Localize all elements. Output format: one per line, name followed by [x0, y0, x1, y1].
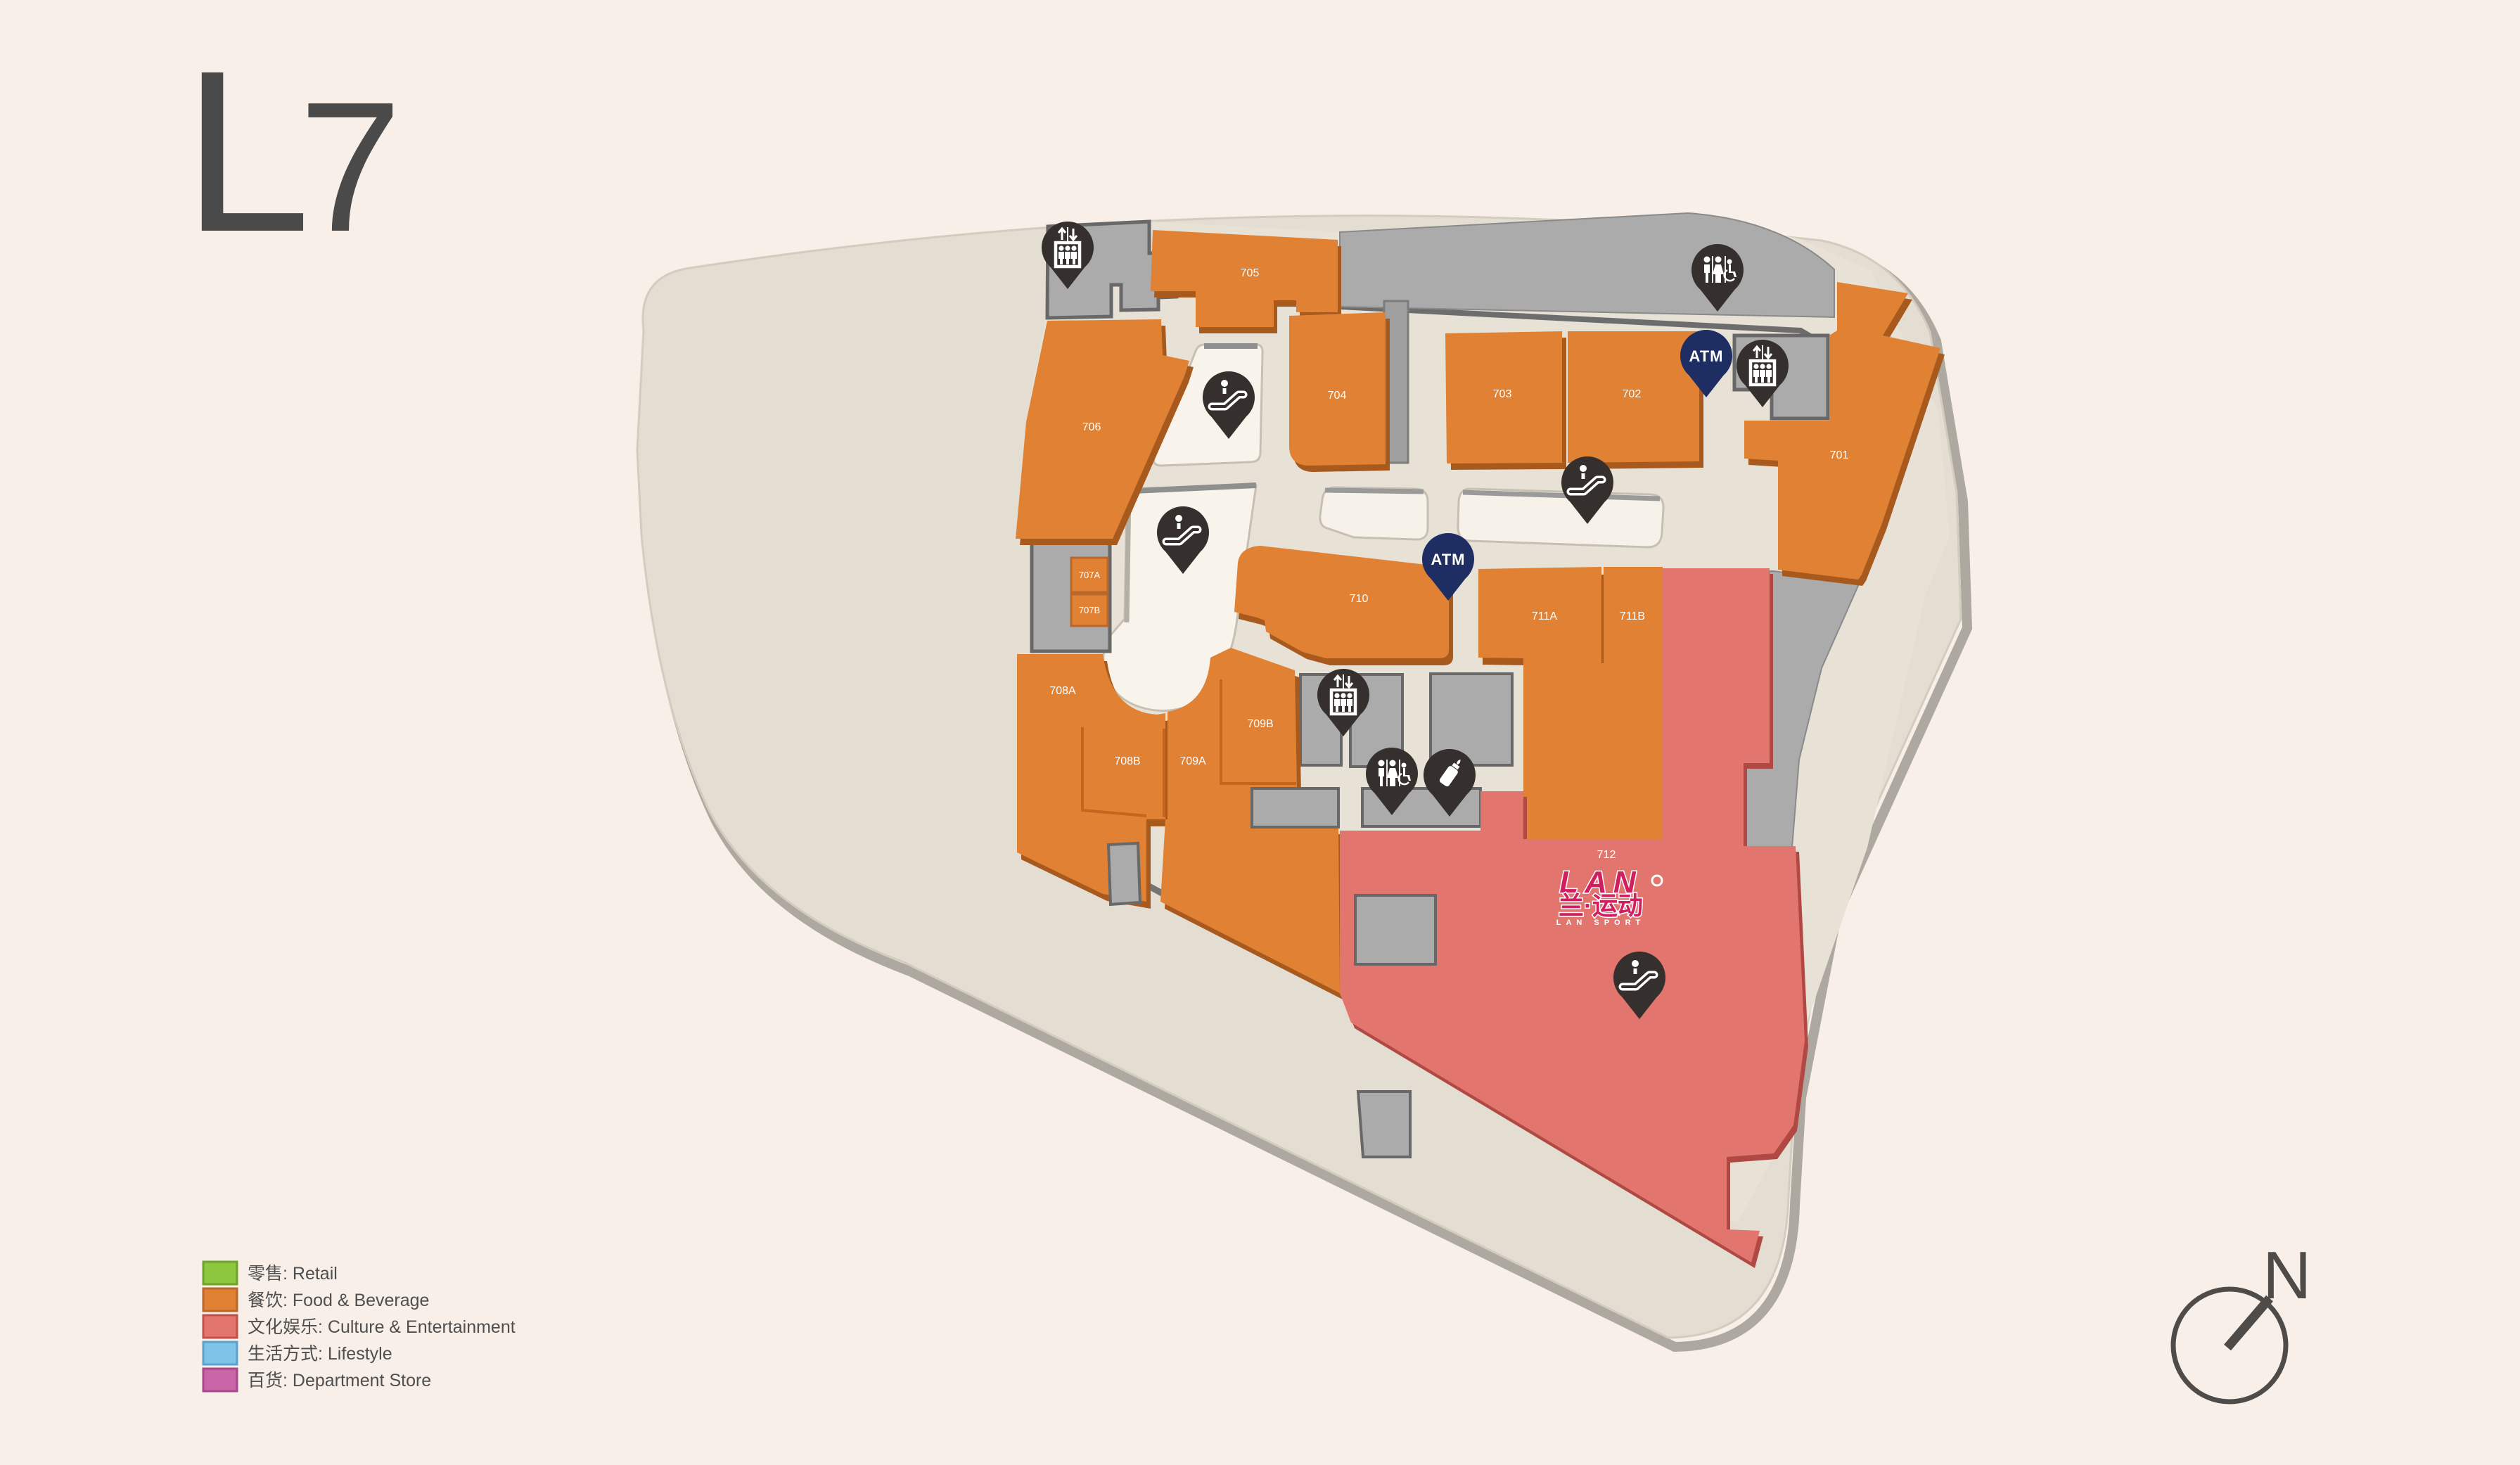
svg-text:709B: 709B: [1247, 718, 1273, 730]
svg-text:LAN SPORT: LAN SPORT: [1556, 919, 1646, 927]
svg-text:710: 710: [1350, 593, 1369, 605]
svg-text:L: L: [183, 23, 311, 280]
svg-text:711B: 711B: [1620, 610, 1645, 622]
svg-text:兰·运动: 兰·运动: [1559, 891, 1643, 920]
svg-text:百货: Department Store: 百货: Department Store: [248, 1371, 431, 1390]
svg-text:705: 705: [1241, 267, 1260, 279]
svg-text:文化娱乐: Culture & Entertainment: 文化娱乐: Culture & Entertainment: [248, 1317, 516, 1337]
svg-text:709A: 709A: [1179, 755, 1206, 767]
svg-text:711A: 711A: [1532, 610, 1558, 622]
svg-text:704: 704: [1328, 390, 1347, 402]
svg-text:生活方式: Lifestyle: 生活方式: Lifestyle: [248, 1344, 392, 1364]
svg-text:703: 703: [1493, 388, 1512, 400]
svg-text:708A: 708A: [1049, 685, 1076, 697]
svg-text:N: N: [2263, 1238, 2311, 1313]
svg-text:707A: 707A: [1079, 570, 1101, 580]
svg-text:7: 7: [299, 63, 402, 270]
svg-text:701: 701: [1830, 449, 1849, 461]
svg-text:712: 712: [1597, 849, 1616, 861]
svg-text:708B: 708B: [1114, 755, 1140, 767]
svg-text:702: 702: [1623, 388, 1642, 400]
svg-text:零售: Retail: 零售: Retail: [248, 1264, 338, 1284]
svg-text:706: 706: [1082, 421, 1101, 433]
svg-text:707B: 707B: [1079, 605, 1100, 615]
svg-text:餐饮: Food & Beverage: 餐饮: Food & Beverage: [248, 1291, 429, 1310]
